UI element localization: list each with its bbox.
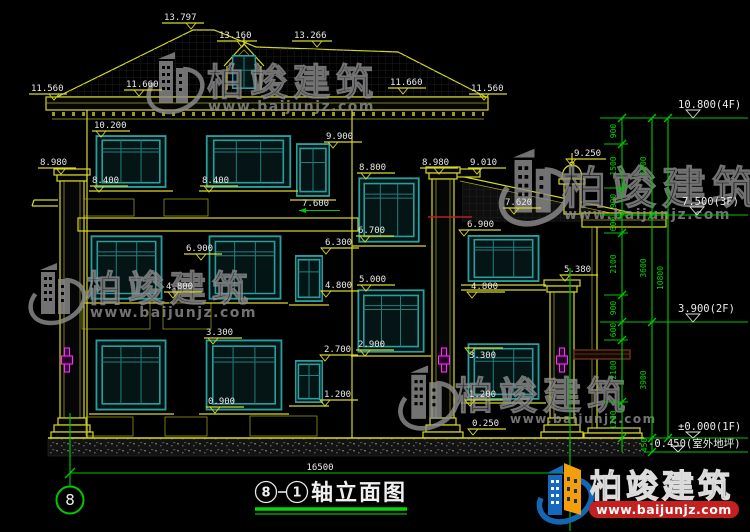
svg-text:2.700: 2.700 (324, 345, 351, 355)
elevation-mark: 13.797 (162, 13, 204, 29)
level-dimension-chain: 900 1500 900 600 2100 900 600 2100 1200 … (600, 99, 748, 456)
elevation-mark: 8.800 (357, 163, 395, 179)
svg-text:6.900: 6.900 (467, 220, 494, 230)
svg-text:7.500(3F): 7.500(3F) (682, 196, 739, 208)
svg-text:-0.450(室外地坪): -0.450(室外地坪) (648, 437, 741, 450)
elevation-mark: 13.266 (292, 31, 332, 47)
elevation-mark: 6.900 (459, 220, 501, 236)
svg-text:0.250: 0.250 (472, 419, 499, 429)
ground-line (48, 438, 644, 456)
watermark-brand: 柏竣建筑 (207, 61, 379, 104)
svg-text:10800: 10800 (656, 266, 665, 290)
svg-text:4.800: 4.800 (166, 282, 193, 292)
elevation-mark: 5.000 (357, 275, 395, 291)
svg-text:3.300: 3.300 (469, 351, 496, 361)
axis-bubble: 8 (57, 487, 84, 514)
title-axis-b: 1 (292, 486, 301, 501)
svg-text:2100: 2100 (609, 254, 618, 273)
window-3f-small (297, 144, 330, 196)
svg-text:4.800: 4.800 (325, 281, 352, 291)
watermark-url: www.baijunjz.com (208, 99, 375, 115)
title-text: 轴立面图 (311, 480, 407, 506)
svg-text:9.900: 9.900 (326, 132, 353, 142)
svg-text:5.380: 5.380 (564, 265, 591, 275)
svg-text:5.000: 5.000 (359, 275, 386, 285)
svg-text:3900: 3900 (639, 370, 648, 389)
svg-text:900: 900 (609, 194, 618, 209)
cad-viewport: 柏竣建筑 www.baijunjz.com 柏竣建筑 www.baijunjz.… (0, 0, 750, 532)
svg-text:8.980: 8.980 (40, 158, 67, 168)
axis-number: 8 (65, 491, 75, 509)
svg-text:2100: 2100 (609, 360, 618, 379)
svg-text:6.900: 6.900 (186, 244, 213, 254)
svg-text:4.800: 4.800 (471, 282, 498, 292)
svg-text:11.560: 11.560 (31, 84, 64, 94)
drawing-title: 8 1 轴立面图 (255, 480, 407, 514)
svg-text:1200: 1200 (609, 410, 618, 429)
svg-text:3.900(2F): 3.900(2F) (678, 303, 735, 315)
watermark: 柏竣建筑 www.baijunjz.com (24, 263, 257, 331)
window-1f-small (296, 361, 323, 402)
elevation-mark: 10.200 (92, 121, 130, 137)
elevation-drawing: 柏竣建筑 www.baijunjz.com 柏竣建筑 www.baijunjz.… (0, 0, 750, 532)
svg-text:11.660: 11.660 (126, 80, 159, 90)
svg-text:11.660: 11.660 (390, 78, 423, 88)
svg-text:13.797: 13.797 (164, 13, 197, 23)
svg-text:1500: 1500 (609, 156, 618, 175)
svg-text:13.160: 13.160 (219, 31, 252, 41)
svg-text:0.900: 0.900 (208, 397, 235, 407)
svg-text:7.600: 7.600 (302, 199, 329, 209)
svg-text:9.250: 9.250 (574, 149, 601, 159)
brand-url-text: www.baijunjz.com (596, 502, 732, 517)
svg-text:900: 900 (609, 124, 618, 139)
svg-text:600: 600 (609, 217, 618, 232)
svg-text:6.700: 6.700 (358, 226, 385, 236)
svg-text:3600: 3600 (639, 258, 648, 277)
svg-text:±0.000(1F): ±0.000(1F) (678, 421, 741, 433)
svg-text:6.300: 6.300 (325, 238, 352, 248)
elevation-mark: 0.250 (468, 419, 506, 435)
eave-bracket (32, 200, 58, 206)
svg-text:2.900: 2.900 (358, 340, 385, 350)
svg-text:900: 900 (609, 301, 618, 316)
svg-text:10.200: 10.200 (94, 121, 127, 131)
svg-text:9.010: 9.010 (470, 158, 497, 168)
floor-level: 3.900(2F) (678, 303, 735, 322)
svg-text:8.800: 8.800 (359, 163, 386, 173)
svg-text:7.620: 7.620 (505, 198, 532, 208)
svg-text:600: 600 (609, 323, 618, 338)
svg-text:8.400: 8.400 (92, 176, 119, 186)
svg-text:13.266: 13.266 (294, 31, 327, 41)
svg-text:1.200: 1.200 (469, 390, 496, 400)
svg-text:3300: 3300 (639, 156, 648, 175)
watermark-url: www.baijunjz.com (90, 305, 257, 321)
elevation-mark: 4.800 (321, 281, 359, 297)
elevation-mark: 7.600 (299, 199, 340, 213)
floor-level: 10.800(4F) (678, 99, 741, 118)
floor-level: -0.450(室外地坪) (648, 437, 741, 452)
title-axis-a: 8 (261, 486, 270, 501)
svg-text:8.400: 8.400 (202, 176, 229, 186)
svg-text:1.200: 1.200 (324, 390, 351, 400)
overall-width-value: 16500 (306, 463, 333, 473)
watermark-url: www.baijunjz.com (510, 412, 657, 426)
brand-logo-text: 柏竣建筑 (590, 467, 734, 505)
svg-text:3.300: 3.300 (206, 328, 233, 338)
window-2f-small (296, 256, 323, 301)
floor-level: ±0.000(1F) (678, 421, 741, 438)
svg-text:11.560: 11.560 (471, 84, 504, 94)
svg-text:8.980: 8.980 (422, 158, 449, 168)
svg-text:10.800(4F): 10.800(4F) (678, 99, 741, 111)
window-wing-2f (468, 236, 538, 281)
window-1f-left (96, 340, 165, 409)
